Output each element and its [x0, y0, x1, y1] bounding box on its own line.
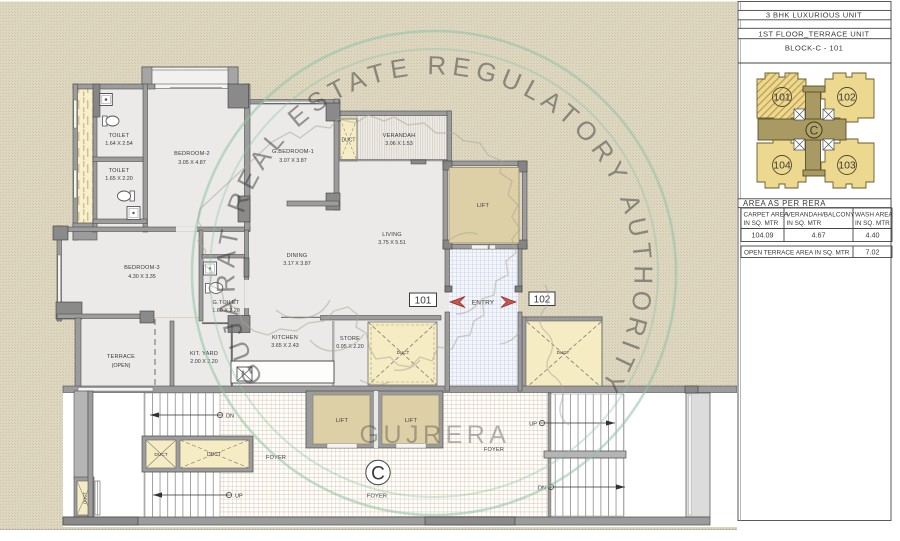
svg-text:DUCT: DUCT [154, 452, 167, 458]
svg-text:WASH AREA: WASH AREA [855, 212, 893, 219]
svg-text:3.05 X 4.87: 3.05 X 4.87 [178, 160, 206, 166]
svg-text:TOILET: TOILET [109, 168, 130, 174]
svg-text:1ST FLOOR_TERRACE UNIT: 1ST FLOOR_TERRACE UNIT [758, 29, 869, 38]
svg-text:4.30 X 3.35: 4.30 X 3.35 [128, 274, 156, 280]
svg-text:103: 103 [838, 160, 856, 172]
svg-text:3.75 X 5.51: 3.75 X 5.51 [378, 240, 406, 246]
svg-text:BLOCK-C - 101: BLOCK-C - 101 [785, 44, 843, 53]
svg-text:KITCHEN: KITCHEN [272, 335, 298, 341]
svg-text:DINING: DINING [287, 253, 308, 259]
svg-text:104.09: 104.09 [752, 231, 774, 240]
svg-text:IN SQ. MTR: IN SQ. MTR [744, 220, 779, 227]
svg-text:UP: UP [235, 494, 243, 500]
svg-text:101: 101 [773, 92, 791, 104]
svg-text:3.65 X 2.43: 3.65 X 2.43 [271, 343, 299, 349]
svg-text:UP: UP [529, 422, 537, 428]
svg-text:LIFT: LIFT [336, 418, 349, 424]
svg-text:DUCT: DUCT [83, 492, 88, 504]
svg-text:IN SQ. MTR: IN SQ. MTR [787, 220, 822, 227]
svg-text:FOYER: FOYER [367, 494, 387, 500]
svg-text:LIFT: LIFT [477, 203, 490, 209]
svg-text:TERRACE: TERRACE [107, 354, 135, 360]
svg-text:C: C [371, 464, 385, 485]
svg-text:BEDROOM-2: BEDROOM-2 [174, 151, 210, 157]
svg-text:7.02: 7.02 [866, 248, 880, 257]
svg-text:102: 102 [838, 92, 856, 104]
svg-text:2.00 X 2.20: 2.00 X 2.20 [190, 359, 218, 365]
svg-text:BEDROOM-3: BEDROOM-3 [124, 265, 160, 271]
svg-text:3.07 X 3.87: 3.07 X 3.87 [279, 158, 307, 164]
svg-text:VERANDAH: VERANDAH [383, 133, 416, 139]
svg-text:C: C [810, 124, 819, 138]
svg-text:DUCT: DUCT [557, 350, 570, 355]
svg-text:AREA AS PER RERA: AREA AS PER RERA [743, 199, 826, 208]
svg-text:104: 104 [773, 160, 791, 172]
svg-text:(OPEN): (OPEN) [112, 363, 131, 369]
svg-text:3.17 X 3.87: 3.17 X 3.87 [283, 261, 311, 267]
svg-text:IN SQ. MTR: IN SQ. MTR [855, 220, 890, 227]
svg-text:CARPET AREA: CARPET AREA [744, 212, 789, 219]
svg-text:DUCT: DUCT [397, 350, 410, 355]
svg-text:3 BHK LUXURIOUS UNIT: 3 BHK LUXURIOUS UNIT [766, 11, 862, 20]
svg-text:DN: DN [226, 414, 234, 420]
svg-text:4.67: 4.67 [812, 231, 826, 240]
svg-text:3.06 X 1.53: 3.06 X 1.53 [385, 141, 413, 147]
svg-text:1.65 X 2.20: 1.65 X 2.20 [105, 176, 133, 182]
svg-text:LIVING: LIVING [382, 232, 402, 238]
svg-text:GUJRERA: GUJRERA [360, 421, 511, 449]
svg-text:DUCT: DUCT [207, 452, 221, 458]
svg-text:101: 101 [415, 296, 432, 307]
svg-text:1.64 X 2.54: 1.64 X 2.54 [105, 141, 133, 147]
svg-text:TOILET: TOILET [109, 133, 130, 139]
svg-text:VERANDAH/BALCONY: VERANDAH/BALCONY [787, 212, 856, 219]
svg-text:4.40: 4.40 [866, 231, 880, 240]
svg-text:DUCT: DUCT [342, 138, 356, 144]
svg-text:OPEN TERRACE AREA IN SQ. MTR: OPEN TERRACE AREA IN SQ. MTR [744, 250, 850, 257]
